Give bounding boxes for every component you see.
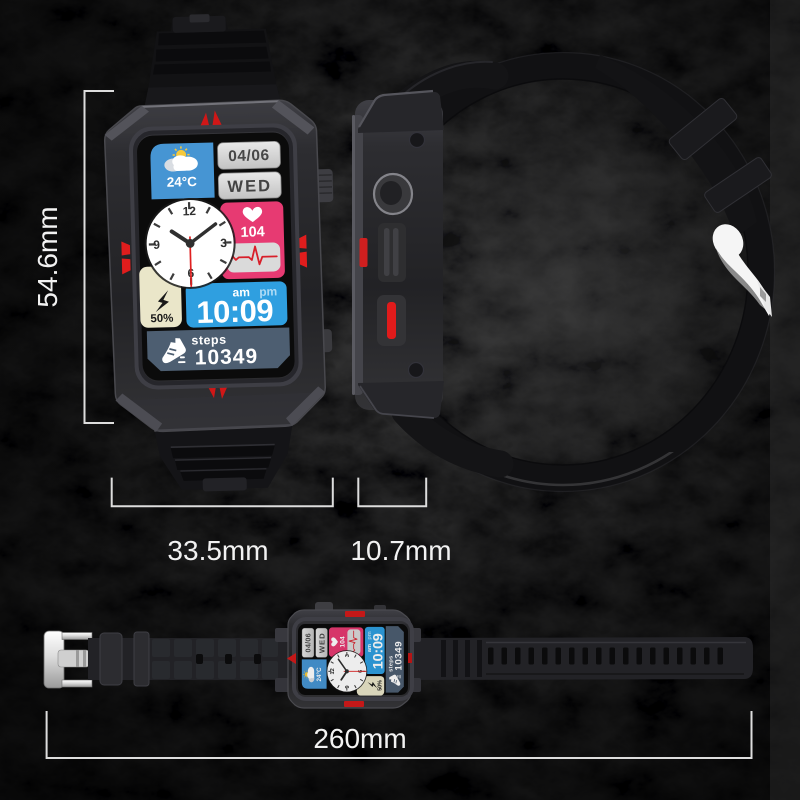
svg-text:54.6mm: 54.6mm — [32, 206, 63, 307]
svg-text:260mm: 260mm — [313, 723, 406, 754]
svg-text:33.5mm: 33.5mm — [167, 535, 268, 566]
svg-text:10.7mm: 10.7mm — [350, 535, 451, 566]
